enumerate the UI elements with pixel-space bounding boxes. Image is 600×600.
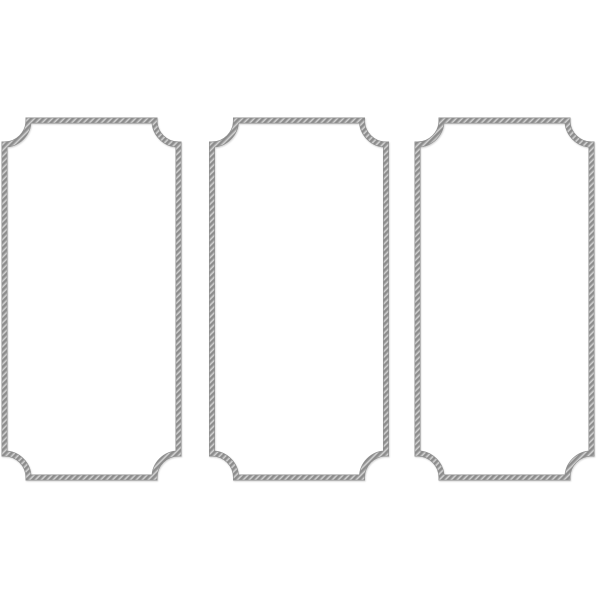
product-image (0, 0, 600, 600)
rope-frame-right (418, 121, 592, 478)
product-photo-stage (0, 0, 600, 600)
rope-frame-left (5, 121, 179, 478)
rope-frame-middle (212, 121, 386, 478)
